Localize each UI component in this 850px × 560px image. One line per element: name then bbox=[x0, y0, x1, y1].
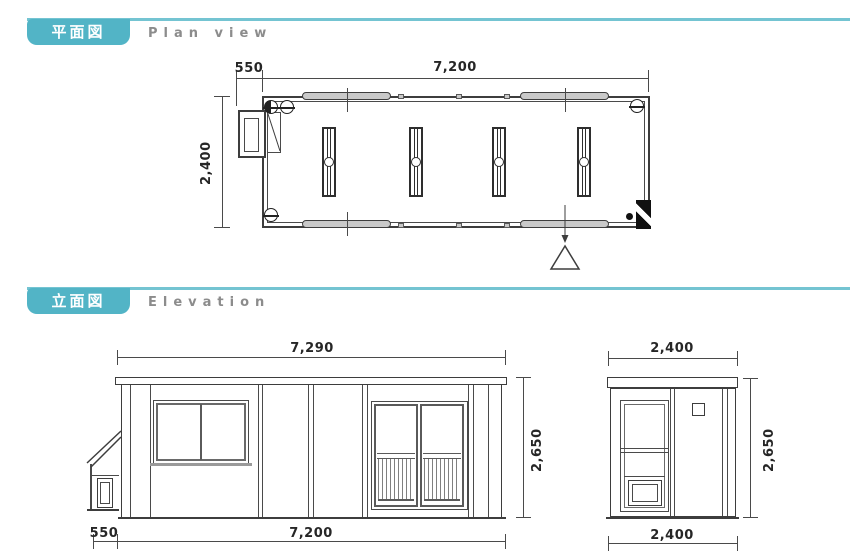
side-roof-slab bbox=[607, 377, 738, 388]
plan-window-center-tick bbox=[565, 88, 566, 112]
front-dim-porch: 550 bbox=[90, 526, 119, 541]
front-base-line bbox=[118, 517, 506, 519]
elevation-section-badge: 立面図 bbox=[27, 288, 130, 314]
front-door-panel bbox=[420, 404, 464, 507]
side-dim-tick bbox=[608, 536, 609, 551]
panel-joint-line bbox=[674, 389, 675, 516]
porch-roof-slope-line bbox=[91, 437, 121, 467]
plan-door-leaf bbox=[267, 112, 281, 153]
front-dim-tick bbox=[516, 377, 531, 378]
panel-joint-line bbox=[488, 385, 489, 517]
light-fixture bbox=[492, 127, 506, 197]
side-dim-width-bottom: 2,400 bbox=[650, 528, 694, 543]
plan-wall-joint-mark bbox=[456, 94, 462, 99]
front-dim-height: 2,650 bbox=[530, 424, 545, 472]
porch-wall-edge bbox=[90, 464, 92, 511]
panel-joint-line bbox=[367, 385, 368, 517]
plan-section-badge: 平面図 bbox=[27, 19, 130, 45]
side-dim-tick bbox=[743, 517, 758, 518]
plan-window-symbol bbox=[520, 220, 609, 228]
plan-dim-body-width: 7,200 bbox=[433, 60, 477, 75]
side-dim-line-bottom bbox=[608, 543, 737, 544]
front-dim-line-right bbox=[523, 377, 524, 518]
distribution-board-symbol bbox=[636, 200, 651, 229]
side-base-line bbox=[606, 517, 739, 519]
side-dim-tick bbox=[743, 378, 758, 379]
plan-wall-joint-mark bbox=[398, 94, 404, 99]
plan-dim-tick bbox=[214, 96, 230, 97]
front-dim-total-width: 7,290 bbox=[290, 341, 334, 356]
elevation-section-subtitle: Elevation bbox=[148, 295, 270, 310]
plan-wall-joint-mark bbox=[504, 223, 510, 228]
side-dim-height: 2,650 bbox=[762, 424, 777, 472]
panel-joint-line bbox=[130, 385, 131, 517]
plan-window-center-tick bbox=[347, 88, 348, 112]
panel-joint-line bbox=[362, 385, 363, 517]
plan-dim-depth: 2,400 bbox=[199, 137, 214, 185]
light-fixture bbox=[577, 127, 591, 197]
side-door-rail bbox=[621, 452, 668, 453]
porch-lintel-line bbox=[92, 475, 119, 476]
panel-joint-line bbox=[727, 389, 728, 516]
front-dim-tick bbox=[505, 350, 506, 365]
section-marker-arrowhead bbox=[562, 235, 569, 243]
side-dim-tick bbox=[737, 351, 738, 366]
front-dim-line-bottom bbox=[93, 541, 505, 542]
plan-porch-step bbox=[244, 118, 259, 152]
panel-joint-line bbox=[473, 385, 474, 517]
panel-joint-line bbox=[722, 389, 723, 516]
elevation-section-rule bbox=[27, 287, 850, 290]
side-vent-square bbox=[692, 403, 705, 416]
front-dim-tick bbox=[505, 534, 506, 549]
side-dim-width-top: 2,400 bbox=[650, 341, 694, 356]
panel-joint-line bbox=[258, 385, 259, 517]
light-fixture bbox=[322, 127, 336, 197]
plan-window-center-tick bbox=[347, 212, 348, 236]
panel-joint-line bbox=[262, 385, 263, 517]
drawing-page: 平面図 Plan view 550 7,200 2,400 bbox=[0, 0, 850, 560]
plan-dim-porch-width: 550 bbox=[235, 61, 264, 76]
front-dim-line-top bbox=[117, 357, 506, 358]
front-door-panel bbox=[374, 404, 418, 507]
side-door-rail bbox=[624, 476, 665, 477]
plan-vent-symbol bbox=[264, 208, 278, 222]
front-window-mullion bbox=[200, 404, 202, 460]
side-door-inset-inner bbox=[632, 484, 658, 502]
plan-vent-symbol-filled bbox=[264, 100, 278, 114]
panel-joint-line bbox=[670, 389, 671, 516]
plan-dim-tick bbox=[214, 227, 230, 228]
panel-joint-line bbox=[313, 385, 314, 517]
side-dim-line-top bbox=[608, 358, 737, 359]
plan-vent-symbol bbox=[630, 99, 644, 113]
entry-triangle-symbol bbox=[551, 246, 579, 269]
plan-outlet-dot-symbol bbox=[626, 213, 633, 220]
porch-door-panel bbox=[100, 482, 110, 504]
front-dim-body: 7,200 bbox=[289, 526, 333, 541]
front-dim-tick bbox=[117, 350, 118, 365]
light-fixture bbox=[409, 127, 423, 197]
porch-base-line bbox=[87, 509, 119, 511]
side-dim-line-right bbox=[750, 378, 751, 518]
panel-joint-line bbox=[308, 385, 309, 517]
plan-dim-line-left bbox=[222, 96, 223, 228]
side-dim-tick bbox=[737, 536, 738, 551]
side-dim-tick bbox=[608, 351, 609, 366]
side-door-rail bbox=[621, 448, 668, 449]
front-dim-tick bbox=[516, 517, 531, 518]
porch-roof-slope-line bbox=[87, 431, 121, 463]
plan-dim-line-top bbox=[236, 78, 648, 79]
plan-vent-symbol bbox=[280, 100, 294, 114]
panel-joint-line bbox=[468, 385, 469, 517]
front-window-sill bbox=[150, 463, 252, 466]
panel-joint-line bbox=[150, 385, 151, 517]
plan-wall-joint-mark bbox=[398, 223, 404, 228]
plan-wall-joint-mark bbox=[456, 223, 462, 228]
plan-section-rule bbox=[27, 18, 850, 21]
plan-section-subtitle: Plan view bbox=[148, 26, 272, 41]
plan-wall-joint-mark bbox=[504, 94, 510, 99]
plan-dim-tick bbox=[648, 70, 649, 92]
